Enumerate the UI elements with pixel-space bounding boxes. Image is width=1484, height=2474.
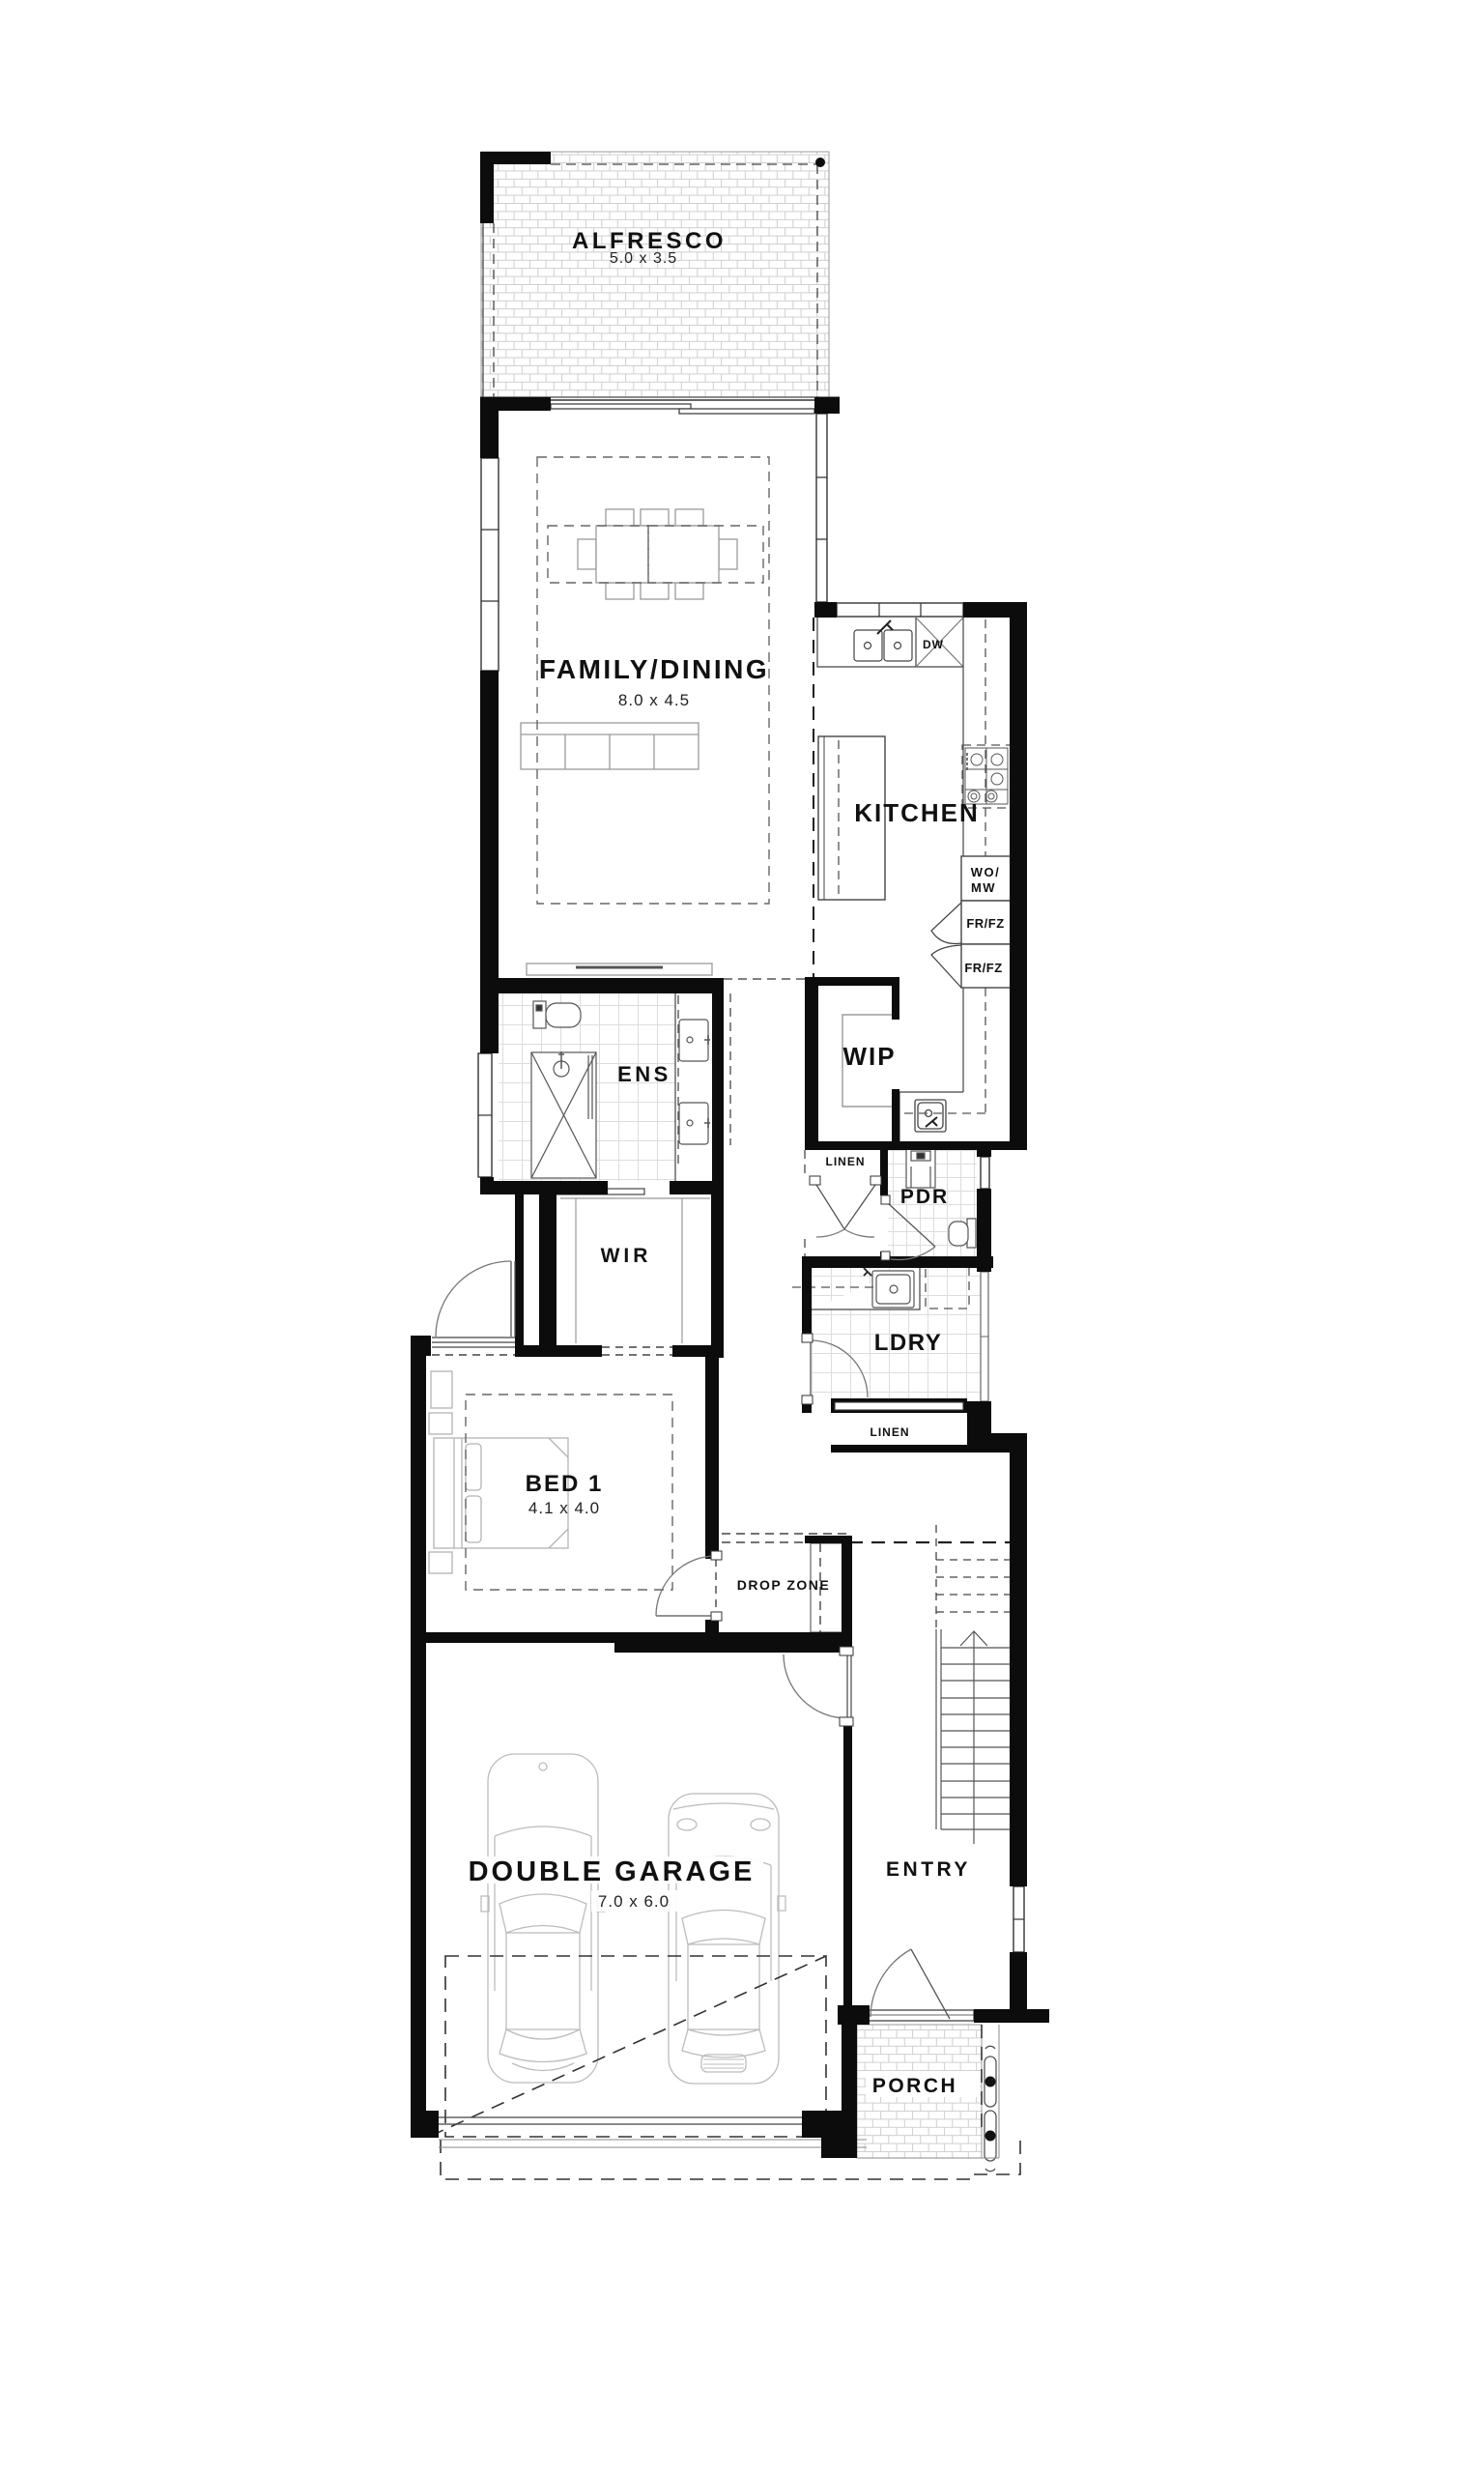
svg-text:KITCHEN: KITCHEN xyxy=(854,798,980,827)
svg-text:LDRY: LDRY xyxy=(874,1330,942,1356)
svg-text:PDR: PDR xyxy=(900,1186,949,1208)
svg-text:WO/: WO/ xyxy=(971,865,1001,879)
svg-text:WIP: WIP xyxy=(842,1042,896,1071)
svg-text:WIR: WIR xyxy=(601,1245,652,1267)
svg-text:FR/FZ: FR/FZ xyxy=(966,916,1004,931)
svg-text:FR/FZ: FR/FZ xyxy=(964,961,1002,975)
svg-text:MW: MW xyxy=(971,880,996,895)
svg-text:PORCH: PORCH xyxy=(872,2075,957,2097)
svg-text:DOUBLE GARAGE: DOUBLE GARAGE xyxy=(469,1856,756,1887)
svg-text:ENTRY: ENTRY xyxy=(886,1858,971,1881)
svg-text:DROP ZONE: DROP ZONE xyxy=(737,1577,830,1593)
svg-text:4.1 x 4.0: 4.1 x 4.0 xyxy=(528,1499,600,1517)
svg-text:5.0 x 3.5: 5.0 x 3.5 xyxy=(610,250,677,267)
svg-text:FAMILY/DINING: FAMILY/DINING xyxy=(539,654,769,684)
svg-text:BED 1: BED 1 xyxy=(526,1471,604,1497)
svg-text:LINEN: LINEN xyxy=(826,1155,866,1168)
svg-text:LINEN: LINEN xyxy=(870,1425,910,1439)
svg-text:8.0 x 4.5: 8.0 x 4.5 xyxy=(618,691,690,709)
svg-text:ENS: ENS xyxy=(617,1062,671,1086)
svg-text:DW: DW xyxy=(923,638,944,651)
svg-text:7.0 x 6.0: 7.0 x 6.0 xyxy=(598,1892,670,1911)
